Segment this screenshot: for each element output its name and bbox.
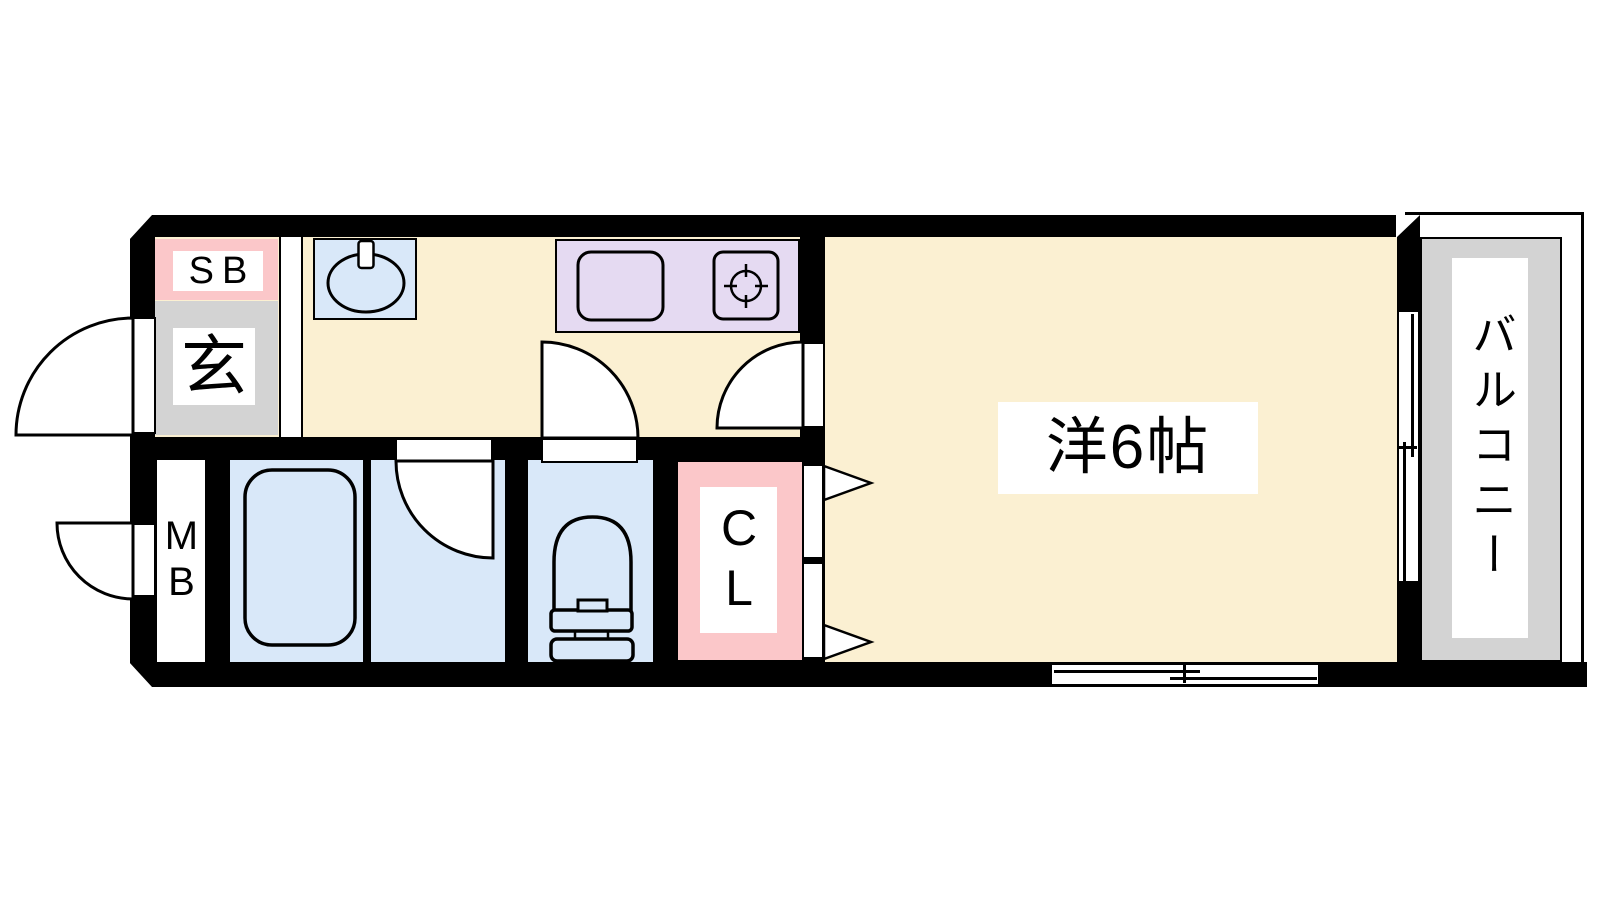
balcony-slider-rail-lower xyxy=(1403,442,1406,581)
balcony-label: バルコニー xyxy=(1467,311,1513,586)
bedroom-label-box: 洋6帖 xyxy=(998,402,1258,494)
floor-plan-canvas: バルコニー xyxy=(0,0,1600,900)
toilet-room-floor xyxy=(528,460,653,662)
bedroom-door-leaf xyxy=(802,342,825,428)
kitchen-counter xyxy=(555,239,800,333)
entrance-step-strip xyxy=(279,237,303,437)
bathtub-room-floor xyxy=(230,460,363,662)
balcony-label-box: バルコニー xyxy=(1452,258,1528,638)
bottom-wall-under-balcony xyxy=(1420,662,1587,687)
meter-box-label: MB xyxy=(157,500,205,620)
balcony-slider-rail-upper xyxy=(1411,314,1414,457)
toilet-door-leaf xyxy=(541,342,559,438)
closet-bifold-panel-bottom xyxy=(802,562,824,659)
entrance-door-leaf xyxy=(129,317,156,434)
balcony-slider-tick xyxy=(1399,446,1417,449)
shoe-box-label-box: SB xyxy=(173,251,263,291)
entrance-label: 玄 xyxy=(181,333,247,400)
bedroom-window-slider xyxy=(1050,663,1320,686)
wash-basin-counter xyxy=(313,238,417,320)
entrance-label-box: 玄 xyxy=(173,328,255,405)
window-center-divider xyxy=(1183,665,1186,683)
bath-door-opening xyxy=(395,438,493,463)
toilet-door-opening xyxy=(541,438,638,463)
closet-bifold-panel-top xyxy=(802,464,824,559)
balcony-sliding-door xyxy=(1397,310,1420,583)
window-rail-lower xyxy=(1170,677,1317,680)
closet-label-box: CL xyxy=(700,487,777,633)
window-rail-upper xyxy=(1054,670,1200,673)
meter-box-door-swing-arc xyxy=(57,523,133,599)
meter-box-door-leaf xyxy=(129,523,156,597)
bedroom-label: 洋6帖 xyxy=(1046,416,1210,479)
washroom-floor xyxy=(371,460,505,662)
entrance-door-swing-arc xyxy=(16,318,133,435)
shoe-box-label: SB xyxy=(181,252,256,291)
